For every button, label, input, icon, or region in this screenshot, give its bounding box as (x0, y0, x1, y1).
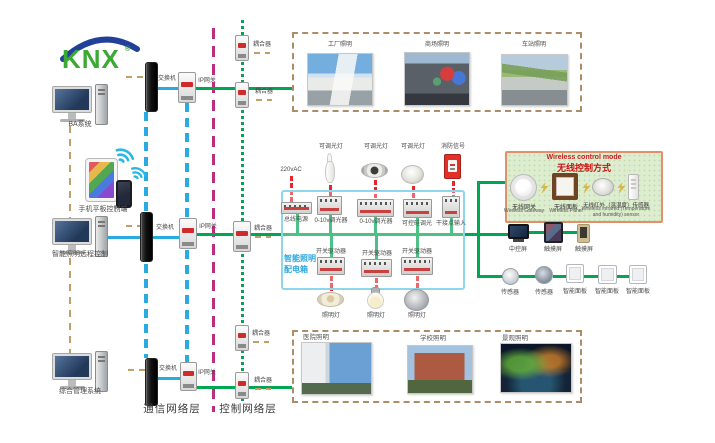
wireless-gateway-label-en: Wireless Gateway (504, 209, 544, 215)
power-in-label: 220vAC (280, 167, 301, 174)
tan-stub-row3 (128, 369, 146, 371)
tan-stub-row2 (126, 225, 141, 227)
switch-icon (145, 62, 158, 112)
photo-factory (307, 53, 373, 106)
switch-driver-module (361, 259, 392, 277)
lamp-label: 照明灯 (322, 313, 340, 320)
distribution-box-title-line2: 配电箱 (284, 264, 316, 275)
mobile-control-label: 手机平板控制端 (79, 206, 128, 214)
scr-dimmer-module (403, 199, 432, 218)
coupler-underline (253, 341, 269, 343)
ip-gateway-label: IP网关 (198, 370, 216, 377)
switch-label: 交换机 (159, 366, 177, 373)
switch-label: 交换机 (158, 76, 176, 83)
switch-driver-label: 开关驱动器 (402, 249, 432, 256)
ba-system-label: BA系统 (68, 121, 91, 129)
fire-signal-label: 消防信号 (441, 144, 465, 151)
wireless-humidity-sensor-icon (628, 174, 639, 200)
distribution-box-title: 智能照明 配电箱 (284, 253, 316, 275)
touch-screen-label: 触摸屏 (575, 247, 593, 254)
link-panel1-panel2 (584, 275, 599, 278)
coupler-icon (235, 82, 249, 108)
lamp-label: 照明灯 (408, 313, 426, 320)
sensor-icon (502, 268, 519, 285)
photo-mall (404, 52, 470, 106)
coupler-underline (254, 52, 270, 54)
knx-bus-sensor-row (477, 275, 504, 278)
lan-link-switch3-gateway3 (157, 377, 182, 380)
lan-link-pc2-switch2 (104, 236, 142, 239)
coupler-label: 耦合器 (254, 378, 272, 385)
ip-gateway-label: IP网关 (199, 224, 217, 231)
ip-gateway-icon (179, 218, 197, 249)
venue-label-landscape: 景观照明 (502, 335, 528, 342)
monitor-icon (52, 353, 92, 380)
knx-trunk-right (477, 181, 480, 278)
control-layer-label: 控制网络层 (219, 401, 277, 416)
switch-driver-label: 开关驱动器 (316, 249, 346, 256)
dimmable-lamp-icon (325, 161, 335, 183)
dimmable-lamp-label: 可调光灯 (319, 144, 343, 151)
coupler-icon (235, 325, 249, 351)
sensor-label: 传感器 (501, 290, 519, 297)
coupler-underline (255, 388, 271, 390)
wireless-panel-icon (552, 173, 578, 200)
tan-link-pc2-pc3 (69, 258, 71, 353)
bus-power-module (281, 202, 312, 214)
touch-screen-icon (544, 222, 563, 243)
dimmer-module (357, 199, 394, 217)
management-label: 综合管理系统 (59, 388, 101, 396)
wireless-ir-sensor-icon (592, 178, 614, 196)
photo-landscape (500, 343, 572, 393)
touch-screen-label: 触摸屏 (544, 247, 562, 254)
touch-screen-icon (577, 224, 590, 243)
wireless-gateway-icon (510, 174, 537, 201)
smart-panel-icon (566, 264, 584, 283)
link-touch1-touch2 (563, 231, 578, 234)
link-cscreen-touch1 (529, 231, 545, 234)
coupler-icon (235, 372, 249, 399)
lightning-icon (539, 182, 550, 194)
coupler-icon (233, 221, 251, 252)
ip-gateway-icon (178, 72, 196, 103)
venue-label-school: 学校照明 (420, 335, 446, 342)
tower-icon (95, 84, 108, 125)
coupler-icon (235, 35, 249, 61)
photo-station (501, 54, 568, 106)
dimmer-label: 0-10v调光器 (314, 218, 347, 225)
lan-link-switch1-gateway1 (157, 87, 179, 90)
smart-panel-label: 智能面板 (563, 289, 587, 296)
wireless-sensor-label-en: Wireless infrared (Temperature and humid… (577, 207, 655, 219)
lamp-icon (404, 289, 429, 311)
lamp-icon (367, 292, 384, 309)
lan-backbone-switch-b (144, 264, 148, 358)
wireless-title-en: Wireless control mode (546, 154, 621, 161)
distribution-box-title-line1: 智能照明 (284, 253, 316, 264)
scr-dimmer-label: 可控硅调光 (402, 221, 432, 228)
coupler-label: 耦合器 (254, 226, 272, 233)
tan-link-pc1-pc2 (69, 126, 71, 218)
phone-icon (116, 180, 132, 208)
tan-stub-row1 (126, 76, 146, 78)
switch-driver-module (401, 257, 433, 275)
ceiling-lamp-icon (401, 165, 424, 184)
dry-contact-label: 干接点输入 (436, 221, 466, 228)
link-sensor1-sensor2 (519, 275, 536, 278)
switch-icon (145, 358, 158, 406)
sensor-label: 传感器 (535, 290, 553, 297)
coupler-label: 耦合器 (252, 331, 270, 338)
coupler-underline (256, 99, 272, 101)
downlight-icon (361, 163, 388, 178)
venue-label-hospital: 医院照明 (303, 334, 329, 341)
photo-school (407, 345, 473, 394)
coupler-label: 耦合器 (253, 42, 271, 49)
lightning-icon (616, 182, 627, 194)
venue-label-factory: 工厂照明 (328, 42, 352, 49)
knx-system-diagram: KNX ® BA系统 手机平板控制端 智能照明远程控制 综合管理系统 交换机 交… (0, 0, 715, 443)
remote-control-label: 智能照明远程控制 (52, 251, 108, 259)
switch-driver-label: 开关驱动器 (362, 251, 392, 258)
dimmable-lamp-label: 可调光灯 (364, 144, 388, 151)
lan-backbone-gateway-a (185, 103, 189, 218)
lamp-icon (317, 292, 344, 307)
coupler-underline (255, 236, 271, 238)
lan-backbone-switch-a (144, 112, 148, 212)
dry-contact-module (442, 196, 460, 218)
knx-logo-text: KNX (62, 44, 120, 75)
dimmer-label: 0-10v调光器 (359, 219, 392, 226)
venue-label-station: 车站照明 (522, 42, 546, 49)
smart-panel-icon (598, 265, 617, 284)
smart-panel-icon (629, 265, 647, 284)
central-screen-label: 中控屏 (509, 247, 527, 254)
venue-label-mall: 商场照明 (425, 42, 449, 49)
central-screen-icon (508, 224, 529, 239)
dimmable-lamp-label: 可调光灯 (401, 144, 425, 151)
switch-driver-module (317, 257, 345, 275)
knx-logo-registered: ® (125, 46, 130, 53)
coupler-label: 耦合器 (255, 89, 273, 96)
fire-alarm-icon (444, 154, 461, 179)
ip-gateway-icon (180, 362, 197, 391)
lan-backbone-gateway-b (185, 250, 189, 362)
link-sensor2-panel1 (553, 275, 567, 278)
monitor-icon (52, 218, 92, 245)
smart-panel-label: 智能面板 (626, 289, 650, 296)
communication-layer-label: 通信网络层 (143, 401, 201, 416)
tablet-icon (85, 158, 118, 202)
photo-hospital (301, 342, 372, 395)
switch-label: 交换机 (156, 225, 174, 232)
lamp-label: 照明灯 (367, 313, 385, 320)
lan-link-switch2-gateway2 (152, 236, 180, 239)
ip-gateway-label: IP网关 (198, 78, 216, 85)
sensor-icon (535, 266, 553, 284)
dimmer-module (317, 196, 342, 215)
layer-divider-line (212, 28, 215, 412)
tower-icon (95, 351, 108, 392)
smart-panel-label: 智能面板 (595, 289, 619, 296)
lightning-icon (581, 182, 592, 194)
switch-icon (140, 212, 153, 262)
monitor-icon (52, 86, 92, 113)
bus-power-label: 总线电源 (284, 217, 308, 224)
